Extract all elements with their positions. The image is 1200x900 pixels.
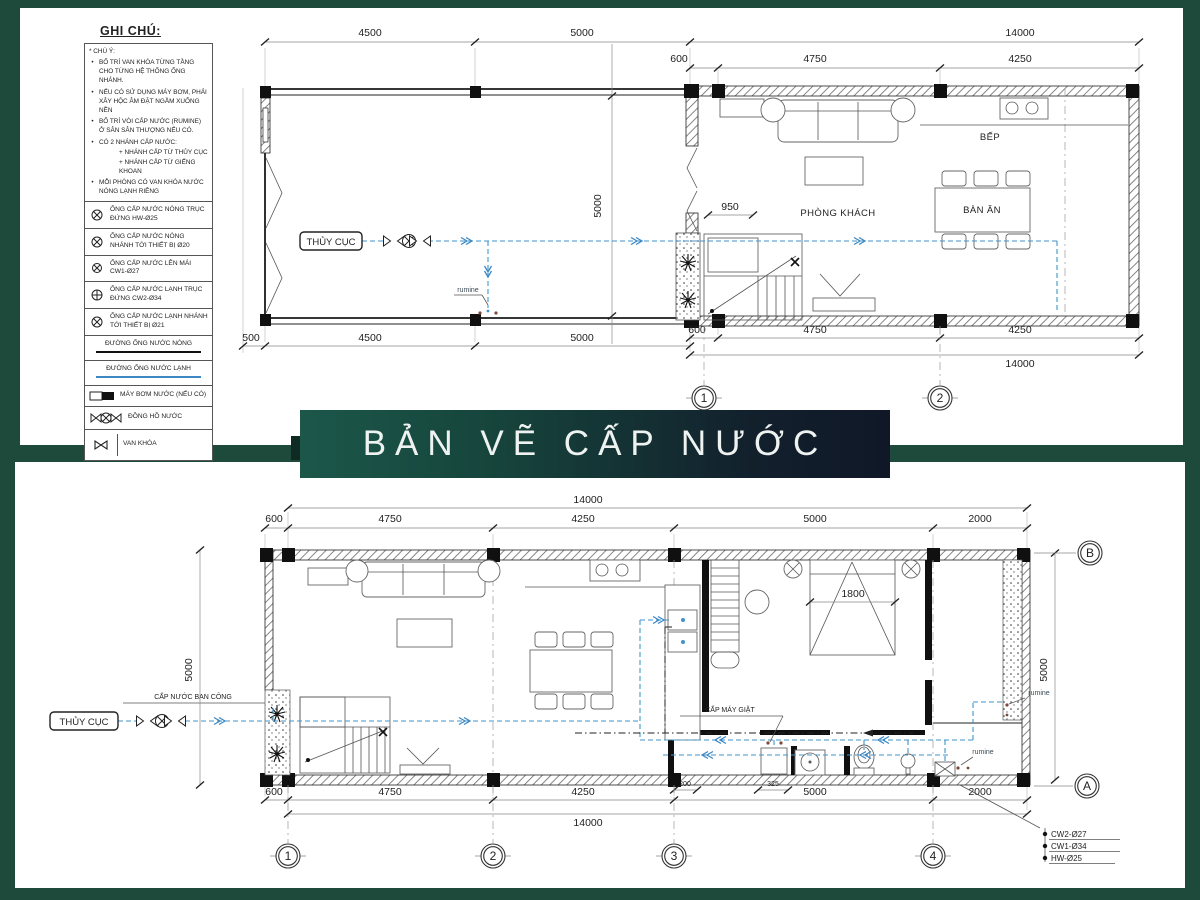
- riser-circle-icon: [89, 208, 105, 222]
- dim-vertical-left: 5000: [183, 547, 204, 789]
- grid-bubble-label: 1: [701, 391, 708, 405]
- dim-label: 4500: [358, 332, 382, 344]
- dim-label: 5000: [592, 194, 604, 218]
- legend-item-hot-riser: ỐNG CẤP NƯỚC NÓNG TRỤC ĐỨNG HW-Ø25: [84, 201, 213, 229]
- stair-planter: [265, 690, 290, 775]
- room-label-dining: BÀN ĂN: [963, 205, 1001, 216]
- dim-label: 600: [688, 324, 706, 336]
- legend-notes-box: * CHÚ Ý: •BỐ TRÍ VAN KHÓA TỪNG TẦNG CHO …: [84, 43, 213, 202]
- legend-item-label: ỐNG CẤP NƯỚC LÊN MÁI CW1-Ø27: [110, 260, 208, 278]
- dim-label: 950: [721, 201, 739, 213]
- source-label: THỦY CỤC: [307, 236, 356, 248]
- main-stair-flight: [711, 560, 769, 668]
- dim-label: 5000: [803, 786, 827, 798]
- pump-icon: [89, 391, 115, 401]
- dim-label: 600: [670, 53, 688, 65]
- room-label-kitchen: BẾP: [980, 132, 1000, 143]
- grid-bubble-label: 2: [937, 391, 944, 405]
- kitchen-dining: [920, 98, 1128, 249]
- grid-bubble-label: 3: [671, 849, 678, 863]
- rumine-label: rumine: [972, 749, 994, 756]
- dimensions-bottom: 200 325 600 4750 4250 5000 2000 14000: [261, 781, 1031, 829]
- grid-bubble-label: 2: [490, 849, 497, 863]
- dim-label: 5000: [570, 332, 594, 344]
- notes-header: * CHÚ Ý:: [89, 48, 208, 57]
- dim-label: 1800: [841, 588, 865, 600]
- dim-label: 600: [265, 786, 283, 798]
- floor-plan-bottom: 14000 600 4750 4250 5000 2000: [15, 462, 1185, 888]
- legend-item-label: ỐNG CẤP NƯỚC NÓNG NHÁNH TỚI THIẾT BỊ Ø20: [110, 233, 208, 251]
- dim-label: 4750: [803, 53, 827, 65]
- note-item: •BỐ TRÍ VÒI CẤP NƯỚC (RUMINE) Ở SÂN SÂN …: [89, 118, 208, 136]
- dim-label: 4750: [378, 786, 402, 798]
- legend-item-valve: VAN KHÓA: [84, 429, 213, 461]
- grid-column-bubbles: 1 2 3 4: [270, 785, 951, 868]
- gate-leaf: [266, 158, 282, 228]
- riser-circle-icon: [89, 288, 105, 302]
- dim-label: 600: [265, 513, 283, 525]
- legend-item-label: ĐƯỜNG ỐNG NƯỚC NÓNG: [89, 340, 208, 347]
- legend-item-label: ĐƯỜNG ỐNG NƯỚC LẠNH: [89, 365, 208, 372]
- dim-label: 325: [767, 781, 779, 788]
- riser-circle-icon: [89, 315, 105, 329]
- door-swing: [687, 148, 697, 188]
- legend-item-cold-line: ĐƯỜNG ỐNG NƯỚC LẠNH: [84, 360, 213, 386]
- balcony-planter: [1003, 560, 1022, 720]
- dim-label: 4250: [1008, 53, 1032, 65]
- riser-circle-icon: [89, 261, 105, 275]
- gate-leaf: [266, 243, 282, 313]
- bathroom-fixtures: [761, 741, 955, 776]
- note-text: NẾU CÓ SỬ DỤNG MÁY BƠM, PHẢI XÂY HỘC ÂM …: [99, 89, 208, 116]
- legend-item-hot-line: ĐƯỜNG ỐNG NƯỚC NÓNG: [84, 335, 213, 361]
- rumine-label: rumine: [1028, 690, 1050, 697]
- note-text: BỐ TRÍ VAN KHÓA TỪNG TẦNG CHO TỪNG HỆ TH…: [99, 59, 208, 86]
- note-text: BỐ TRÍ VÒI CẤP NƯỚC (RUMINE) Ở SÂN SÂN T…: [99, 118, 208, 136]
- bullet: •: [89, 59, 96, 86]
- legend-item-label: MÁY BƠM NƯỚC (NẾU CÓ): [120, 391, 206, 400]
- water-source-callout: THỦY CỤC: [50, 712, 118, 730]
- pipe-tag: CW1-Ø34: [1051, 842, 1087, 851]
- living-room-furniture: [308, 560, 500, 774]
- room-label-living: PHÒNG KHÁCH: [800, 208, 875, 219]
- water-meter-icon: [89, 411, 123, 425]
- note-item: •NẾU CÓ SỬ DỤNG MÁY BƠM, PHẢI XÂY HỘC ÂM…: [89, 89, 208, 116]
- note-text: CÓ 2 NHÁNH CẤP NƯỚC:: [99, 139, 177, 148]
- dim-label: 200: [679, 781, 691, 788]
- note-item: •BỐ TRÍ VAN KHÓA TỪNG TẦNG CHO TỪNG HỆ T…: [89, 59, 208, 86]
- dimensions-bottom: 500 4500 5000 600 4750 4250 14000: [239, 324, 1143, 370]
- note-subitem: + NHÁNH CẤP TỪ THỦY CỤC: [119, 149, 208, 158]
- dim-label: 4500: [358, 27, 382, 39]
- floor-plan-top: 4500 5000 14000 600 4750 4250: [220, 8, 1183, 445]
- dim-vertical-right: 5000: [1038, 550, 1059, 784]
- legend-item-pump: MÁY BƠM NƯỚC (NẾU CÓ): [84, 385, 213, 407]
- grid-bubble-label: B: [1086, 546, 1094, 560]
- dim-label: 5000: [183, 658, 195, 682]
- note-text: MỖI PHÒNG CÓ VAN KHÓA NƯỚC NÓNG LẠNH RIÊ…: [99, 179, 208, 197]
- rumine-label: rumine: [457, 287, 479, 294]
- staircase: [704, 234, 802, 320]
- legend-item-cold-riser: ỐNG CẤP NƯỚC LẠNH TRỤC ĐỨNG CW2-Ø34: [84, 281, 213, 309]
- water-source-callout: THỦY CỤC: [300, 232, 362, 250]
- legend-item-label: ĐỒNG HỒ NƯỚC: [128, 413, 182, 422]
- dim-label: 14000: [1005, 27, 1034, 39]
- dim-label: 14000: [573, 817, 602, 829]
- legend-item-label: VAN KHÓA: [123, 440, 157, 449]
- legend-item-water-meter: ĐỒNG HỒ NƯỚC: [84, 406, 213, 430]
- dim-label: 500: [242, 332, 260, 344]
- dim-label: 4250: [1008, 324, 1032, 336]
- note-item: •CÓ 2 NHÁNH CẤP NƯỚC:: [89, 139, 208, 148]
- staircase: [300, 697, 390, 773]
- balcony-supply-label: CẤP NƯỚC BAN CÔNG: [154, 691, 232, 701]
- source-label: THỦY CỤC: [60, 716, 109, 728]
- note-item: •MỖI PHÒNG CÓ VAN KHÓA NƯỚC NÓNG LẠNH RI…: [89, 179, 208, 197]
- dim-950: 950: [704, 201, 757, 219]
- washer-supply-label: CẤP MÁY GIẶT: [705, 704, 755, 714]
- pipe-tag: HW-Ø25: [1051, 854, 1083, 863]
- dim-label: 4750: [803, 324, 827, 336]
- kitchen-dining: [525, 560, 700, 740]
- note-subitem: + NHÁNH CẤP TỪ GIẾNG KHOAN: [119, 159, 208, 177]
- living-room-furniture: [720, 98, 915, 311]
- dimensions-top: 4500 5000 14000 600 4750 4250: [261, 27, 1143, 72]
- legend-item-roof-pipe: ỐNG CẤP NƯỚC LÊN MÁI CW1-Ø27: [84, 255, 213, 283]
- dim-label: 4250: [571, 513, 595, 525]
- legend-item-label: ỐNG CẤP NƯỚC LẠNH NHÁNH TỚI THIẾT BỊ Ø21: [110, 313, 208, 331]
- grid-bubble-label: A: [1083, 779, 1091, 793]
- title-banner: BẢN VẼ CẤP NƯỚC: [300, 410, 890, 478]
- bullet: •: [89, 139, 96, 148]
- hot-pipe-swatch: [96, 351, 201, 353]
- pipe-tag: CW2-Ø27: [1051, 830, 1087, 839]
- dimensions-top: 14000 600 4750 4250 5000 2000: [261, 494, 1031, 532]
- grid-bubble-label: 4: [930, 849, 937, 863]
- dim-label: 14000: [573, 494, 602, 506]
- bedroom-furniture: 1800: [784, 560, 920, 655]
- stair-planter: [676, 233, 700, 320]
- dim-label: 4750: [378, 513, 402, 525]
- bullet: •: [89, 179, 96, 197]
- legend-item-hot-branch: ỐNG CẤP NƯỚC NÓNG NHÁNH TỚI THIẾT BỊ Ø20: [84, 228, 213, 256]
- bottom-sheet-panel: 14000 600 4750 4250 5000 2000: [15, 462, 1185, 888]
- dim-label: 14000: [1005, 358, 1034, 370]
- drawing-title: BẢN VẼ CẤP NƯỚC: [363, 424, 828, 464]
- bullet: •: [89, 89, 96, 116]
- valve-icon: [89, 434, 118, 456]
- legend-panel: GHI CHÚ: * CHÚ Ý: •BỐ TRÍ VAN KHÓA TỪNG …: [84, 24, 213, 461]
- cold-pipe-swatch: [96, 376, 201, 378]
- top-sheet-panel: GHI CHÚ: * CHÚ Ý: •BỐ TRÍ VAN KHÓA TỪNG …: [20, 8, 1183, 445]
- dim-label: 4250: [571, 786, 595, 798]
- riser-circle-icon: [89, 235, 105, 249]
- grid-bubbles: 1 2: [686, 326, 958, 410]
- dim-label: 5000: [803, 513, 827, 525]
- dim-label: 2000: [968, 513, 992, 525]
- bullet: •: [89, 118, 96, 136]
- dim-label: 5000: [1038, 658, 1050, 682]
- legend-item-cold-branch: ỐNG CẤP NƯỚC LẠNH NHÁNH TỚI THIẾT BỊ Ø21: [84, 308, 213, 336]
- rumine-faucet: rumine: [454, 287, 498, 315]
- legend-item-label: ỐNG CẤP NƯỚC LẠNH TRỤC ĐỨNG CW2-Ø34: [110, 286, 208, 304]
- dim-label: 5000: [570, 27, 594, 39]
- grid-bubble-label: 1: [285, 849, 292, 863]
- legend-title: GHI CHÚ:: [100, 24, 213, 38]
- legend-item-label: ỐNG CẤP NƯỚC NÓNG TRỤC ĐỨNG HW-Ø25: [110, 206, 208, 224]
